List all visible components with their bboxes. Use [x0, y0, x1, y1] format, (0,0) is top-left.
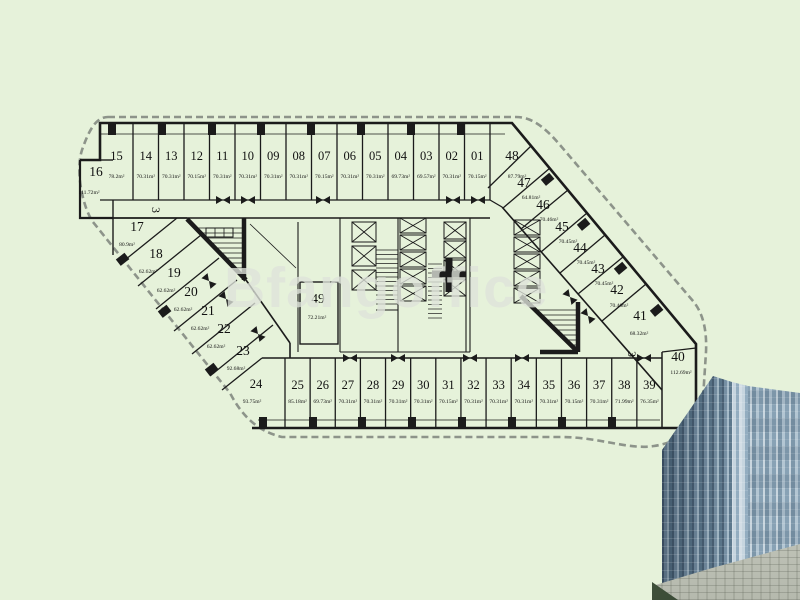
unit-area: 70.31m² [339, 399, 358, 405]
unit-number: 30 [417, 378, 430, 392]
door-symbol [250, 326, 265, 342]
unit-area: 70.15m² [315, 174, 334, 180]
unit-number: 08 [293, 149, 306, 163]
structural-column [508, 417, 516, 428]
unit-area: 70.31m² [489, 399, 508, 405]
unit-number: 38 [618, 378, 631, 392]
unit-area: 70.31m² [540, 399, 559, 405]
unit-area: 78.2m² [109, 174, 125, 180]
unit-number: 06 [344, 149, 357, 163]
unit-number: 11 [216, 149, 228, 163]
unit-number: 24 [250, 377, 263, 391]
unit-number: 03 [420, 149, 433, 163]
unit-area: 70.46m² [610, 303, 629, 309]
unit-number: 23 [236, 343, 250, 358]
unit-area: 68.32m² [630, 331, 649, 337]
door-symbol [316, 196, 330, 204]
unit-area: 70.15m² [468, 174, 487, 180]
unit-number: 46 [536, 197, 550, 212]
structural-column [208, 124, 216, 135]
unit-number: 16 [89, 164, 103, 179]
unit-number: 33 [492, 378, 505, 392]
unit-number: 34 [518, 378, 531, 392]
unit-area: 70.31m² [414, 399, 433, 405]
door-symbol [446, 196, 460, 204]
unit-area: 62.62m² [174, 307, 193, 313]
unit-area: 70.31m² [442, 174, 461, 180]
corridor-wall [490, 200, 502, 207]
unit-number: 13 [165, 149, 178, 163]
unit-number: 41 [633, 308, 647, 323]
unit-area: 70.31m² [238, 174, 257, 180]
unit-number: 31 [442, 378, 455, 392]
unit-area: 70.31m² [213, 174, 232, 180]
structural-column [307, 124, 315, 135]
structural-column [558, 417, 566, 428]
unit-number: 17 [130, 219, 144, 234]
structural-column [458, 417, 466, 428]
structural-column [650, 304, 664, 317]
unit-area: 70.15m² [439, 399, 458, 405]
door-symbol [241, 196, 255, 204]
unit-number: 10 [242, 149, 255, 163]
unit-area: 70.31m² [590, 399, 609, 405]
unit-number: 37 [593, 378, 606, 392]
door-symbol [471, 196, 485, 204]
unit-number: 27 [342, 378, 355, 392]
unit-number: 07 [318, 149, 331, 163]
unit-area: 62.62m² [191, 326, 210, 332]
unit-area: 70.31m² [364, 399, 383, 405]
unit-number: 02 [446, 149, 459, 163]
unit-area: 70.31m² [514, 399, 533, 405]
structural-column [116, 253, 130, 266]
unit-area: 70.31m² [389, 399, 408, 405]
section-marker: 3 [149, 207, 163, 213]
structural-column [357, 124, 365, 135]
structural-column [309, 417, 317, 428]
unit-number: 32 [467, 378, 480, 392]
unit-number: 05 [369, 149, 382, 163]
structural-column [108, 124, 116, 135]
watermark: Bfangoffice [224, 252, 584, 324]
structural-column [407, 124, 415, 135]
unit-area: 70.31m² [340, 174, 359, 180]
unit-number: 09 [267, 149, 280, 163]
unit-number: 28 [367, 378, 380, 392]
unit-area: 69.57m² [417, 174, 436, 180]
structural-column [608, 417, 616, 428]
unit-area: 62.62m² [157, 288, 176, 294]
unit-area: 70.15m² [565, 399, 584, 405]
unit-number: 35 [543, 378, 556, 392]
unit-area: 69.73m² [391, 174, 410, 180]
door-symbol [391, 354, 405, 362]
unit-number: 42 [610, 282, 624, 297]
door-symbol [343, 354, 357, 362]
unit-number: 21 [201, 303, 215, 318]
unit-area: 70.15m² [187, 174, 206, 180]
unit-area: 93.75m² [243, 399, 262, 405]
door-symbol [216, 196, 230, 204]
unit-number: 15 [110, 149, 123, 163]
structural-column [257, 124, 265, 135]
unit-number: 12 [191, 149, 204, 163]
unit-area: 62.62m² [139, 269, 158, 275]
unit-area: 80.9m² [119, 242, 135, 248]
unit-number: 18 [149, 246, 163, 261]
building-photo [652, 362, 800, 600]
unit-number: 14 [140, 149, 153, 163]
structural-column [358, 417, 366, 428]
unit-number: 45 [555, 219, 569, 234]
door-symbol [515, 354, 529, 362]
unit-number: 36 [568, 378, 581, 392]
unit-area: 70.31m² [464, 399, 483, 405]
unit-number: 04 [395, 149, 408, 163]
unit-number: 47 [517, 175, 531, 190]
unit-area: 69.73m² [313, 399, 332, 405]
unit-area: 85.18m² [288, 399, 307, 405]
unit-area: 70.31m² [264, 174, 283, 180]
unit-number: 01 [471, 149, 484, 163]
floor-plan-page: 1578.2m²1470.31m²1370.31m²1270.15m²1170.… [0, 0, 800, 600]
unit-area: 62.62m² [207, 344, 226, 350]
unit-number: 20 [184, 284, 198, 299]
unit-number: 26 [316, 378, 329, 392]
unit-number: 19 [167, 265, 181, 280]
unit-number: 29 [392, 378, 405, 392]
section-marker: 3 [625, 351, 639, 357]
structural-column [259, 417, 267, 428]
unit-area: 92.68m² [227, 366, 246, 372]
unit-area: 70.31m² [366, 174, 385, 180]
structural-column [457, 124, 465, 135]
unit-number: 25 [291, 378, 304, 392]
structural-column [158, 124, 166, 135]
unit-area: 70.31m² [289, 174, 308, 180]
unit-area: 70.31m² [136, 174, 155, 180]
structural-column [408, 417, 416, 428]
unit-number: 43 [591, 261, 605, 276]
door-symbol [201, 273, 216, 289]
door-symbol [463, 354, 477, 362]
unit-number: 48 [505, 148, 519, 163]
unit-area: 71.99m² [615, 399, 634, 405]
lobby-detail [206, 228, 233, 237]
unit-area: 70.31m² [162, 174, 181, 180]
unit-area: 111.72m² [79, 190, 100, 196]
